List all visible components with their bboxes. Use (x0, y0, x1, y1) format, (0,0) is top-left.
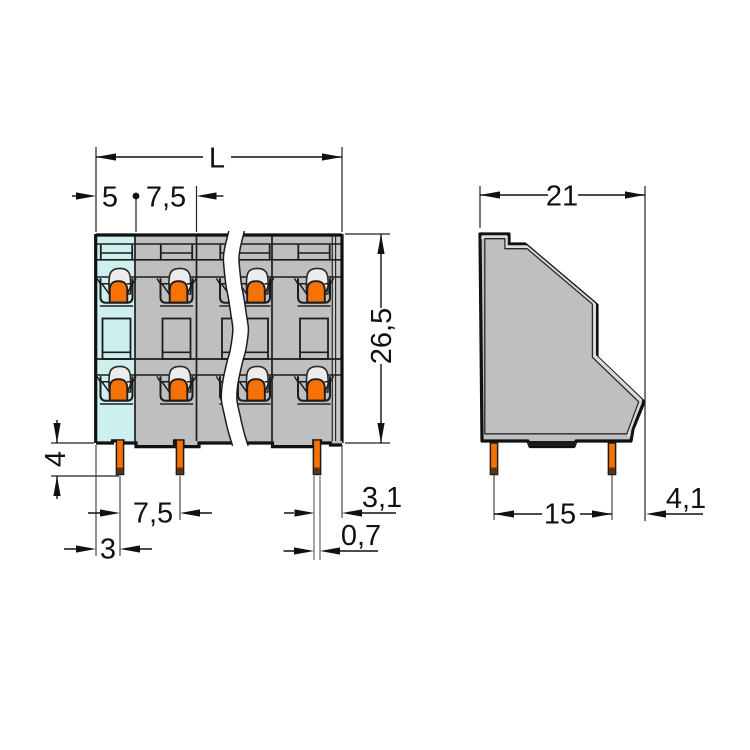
svg-text:21: 21 (546, 181, 578, 213)
svg-text:3,1: 3,1 (362, 482, 402, 514)
svg-text:3: 3 (100, 534, 116, 566)
svg-text:26,5: 26,5 (366, 308, 398, 364)
svg-text:7,5: 7,5 (133, 498, 173, 530)
svg-text:4: 4 (40, 451, 72, 467)
svg-text:7,5: 7,5 (146, 182, 186, 214)
svg-text:0,7: 0,7 (341, 520, 381, 552)
svg-text:L: L (209, 143, 225, 175)
svg-text:15: 15 (544, 499, 576, 531)
svg-text:5: 5 (102, 182, 118, 214)
svg-text:4,1: 4,1 (666, 483, 706, 515)
